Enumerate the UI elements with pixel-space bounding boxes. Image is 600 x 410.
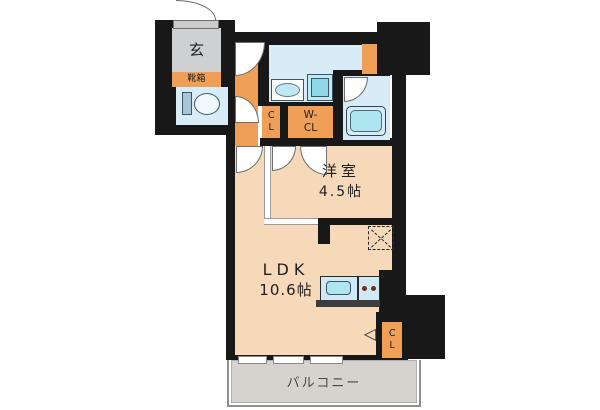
western-room-name: 洋室 <box>295 160 387 181</box>
sliding-door <box>264 218 318 225</box>
balcony-label: バルコニー <box>227 366 421 402</box>
kitchen-divider <box>357 277 359 300</box>
toilet-tank-icon <box>182 92 192 115</box>
wall <box>377 22 430 75</box>
living-closet-label: CL <box>382 322 402 358</box>
wall <box>392 72 406 300</box>
ldk-size: 10.6帖 <box>238 279 334 300</box>
washing-machine-icon <box>307 74 333 101</box>
window <box>310 356 343 364</box>
walk-in-closet-label: W-CL <box>288 106 333 138</box>
stove-burner-icon <box>371 286 376 291</box>
entry-arrow-icon: ◁ <box>360 324 380 344</box>
floorplan: ◁ 玄 靴箱 CL W-CL 洋室 4.5帖 LDK 10.6帖 CL バルコニ… <box>0 0 600 410</box>
western-room-size: 4.5帖 <box>295 181 387 201</box>
washroom <box>333 45 362 70</box>
wall <box>333 106 343 138</box>
pipe-space <box>362 44 377 74</box>
wall <box>226 125 235 360</box>
ldk-label: LDK 10.6帖 <box>238 260 334 300</box>
vanity-sink-icon <box>271 79 304 101</box>
ldk-name: LDK <box>238 260 334 279</box>
window <box>238 356 267 364</box>
western-room-label: 洋室 4.5帖 <box>295 160 387 201</box>
entrance-label: 玄 <box>172 28 221 72</box>
wall <box>280 106 288 138</box>
shoe-box-label: 靴箱 <box>172 72 221 87</box>
stove-burner-icon <box>362 286 367 291</box>
hall-closet-label: CL <box>262 106 280 138</box>
sliding-partition <box>264 146 271 218</box>
bathtub-icon <box>346 106 386 136</box>
wall <box>318 218 330 244</box>
window <box>273 356 304 364</box>
service-space-icon <box>368 226 394 250</box>
toilet-bowl-icon <box>194 93 220 115</box>
kitchen-counter-front <box>316 300 380 307</box>
